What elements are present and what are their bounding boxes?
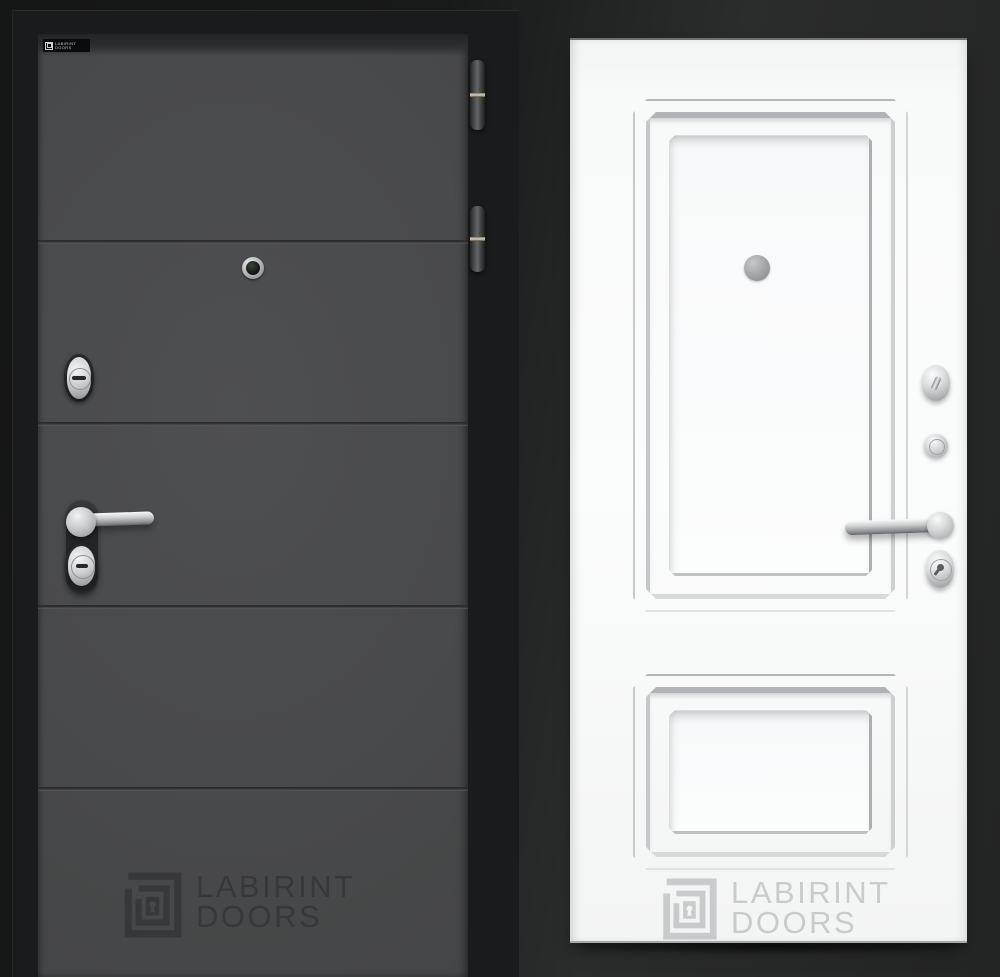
brand-watermark: LABIRINT DOORS — [118, 872, 356, 938]
keyhole-lock — [926, 550, 954, 588]
lower-molded-panel — [633, 674, 908, 870]
hinge-bottom — [470, 206, 485, 272]
watermark-line1: LABIRINT — [731, 878, 891, 908]
handle-rosette — [927, 512, 954, 539]
upper-molded-panel — [633, 99, 908, 612]
right-door-leaf: LABIRINT DOORS — [570, 38, 967, 943]
labyrinth-logo-icon — [657, 878, 719, 940]
lock-cylinder — [924, 434, 948, 458]
handle-rosette — [66, 507, 96, 537]
left-door-top-shadow — [38, 34, 468, 56]
brand-badge-text: LABIRINT DOORS — [55, 42, 76, 50]
door-groove — [38, 240, 468, 244]
watermark-line2: DOORS — [731, 908, 891, 938]
door-groove — [38, 787, 468, 791]
upper-cylinder-lock — [64, 354, 94, 402]
brand-watermark: LABIRINT DOORS — [657, 878, 891, 940]
watermark-line1: LABIRINT — [196, 872, 356, 902]
lever-handle — [845, 518, 938, 535]
watermark-line2: DOORS — [196, 902, 356, 932]
labyrinth-logo-icon — [118, 872, 184, 938]
lower-keyhole-lock — [65, 543, 98, 589]
product-photo-two-doors: LABIRINT DOORS LAB — [0, 0, 1000, 977]
peephole — [242, 257, 264, 279]
brand-badge-line2: DOORS — [55, 46, 76, 50]
peephole-cover — [744, 255, 770, 281]
left-door-leaf: LABIRINT DOORS LAB — [38, 34, 468, 977]
door-groove — [38, 422, 468, 426]
labyrinth-logo-icon — [45, 42, 53, 50]
brand-badge: LABIRINT DOORS — [43, 39, 90, 52]
door-groove — [38, 605, 468, 609]
hinge-top — [470, 60, 485, 130]
thumbturn — [922, 365, 950, 401]
